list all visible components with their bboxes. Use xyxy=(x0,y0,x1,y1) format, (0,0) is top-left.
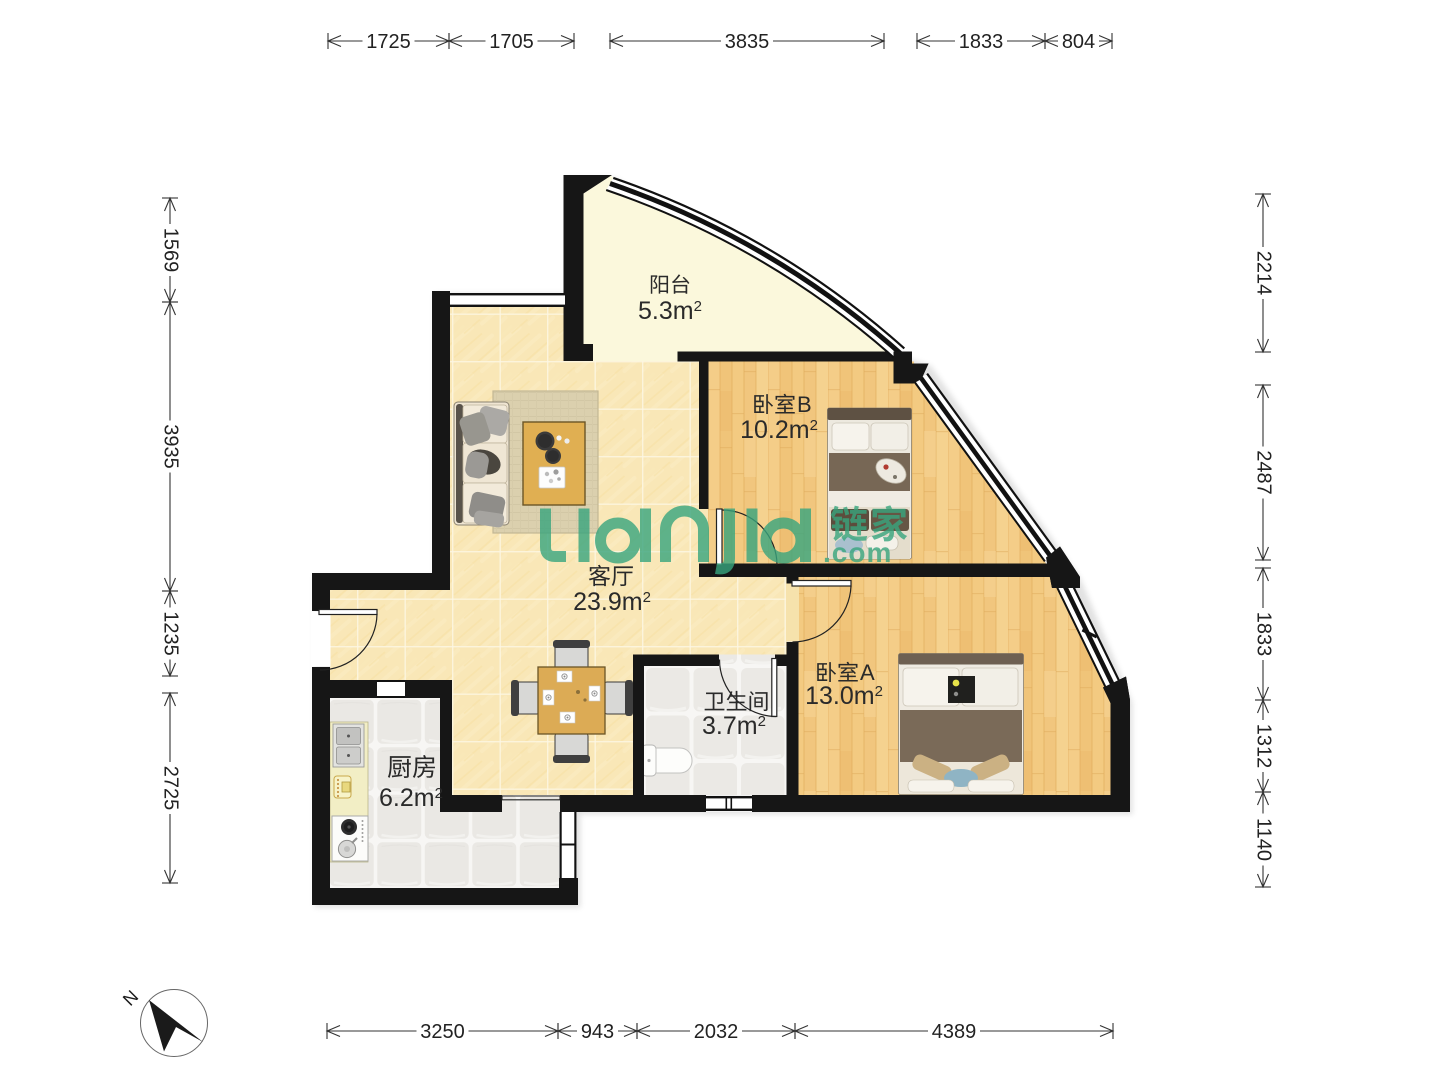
svg-text:943: 943 xyxy=(581,1021,614,1043)
svg-text:1833: 1833 xyxy=(959,31,1004,53)
svg-text:2487: 2487 xyxy=(1253,450,1275,495)
svg-text:B: B xyxy=(797,392,812,417)
svg-text:1140: 1140 xyxy=(1253,818,1275,861)
svg-text:23.9m2: 23.9m2 xyxy=(573,588,651,616)
svg-text:4389: 4389 xyxy=(932,1021,977,1043)
svg-text:.com: .com xyxy=(823,537,892,568)
svg-text:1235: 1235 xyxy=(160,611,182,656)
svg-text:1725: 1725 xyxy=(366,31,411,53)
svg-text:1312: 1312 xyxy=(1253,724,1275,769)
svg-text:5.3m2: 5.3m2 xyxy=(638,297,702,325)
svg-text:13.0m2: 13.0m2 xyxy=(805,682,883,710)
svg-text:1833: 1833 xyxy=(1253,612,1275,657)
svg-text:804: 804 xyxy=(1062,31,1095,53)
svg-text:1569: 1569 xyxy=(160,228,182,273)
svg-text:2214: 2214 xyxy=(1253,251,1275,296)
svg-text:10.2m2: 10.2m2 xyxy=(740,416,818,444)
svg-text:6.2m2: 6.2m2 xyxy=(379,784,443,812)
svg-text:1705: 1705 xyxy=(489,31,534,53)
svg-text:3935: 3935 xyxy=(160,424,182,469)
svg-text:3250: 3250 xyxy=(420,1021,465,1043)
svg-text:3.7m2: 3.7m2 xyxy=(702,712,766,740)
svg-text:2725: 2725 xyxy=(160,766,182,811)
svg-text:2032: 2032 xyxy=(694,1021,739,1043)
svg-text:3835: 3835 xyxy=(725,31,770,53)
